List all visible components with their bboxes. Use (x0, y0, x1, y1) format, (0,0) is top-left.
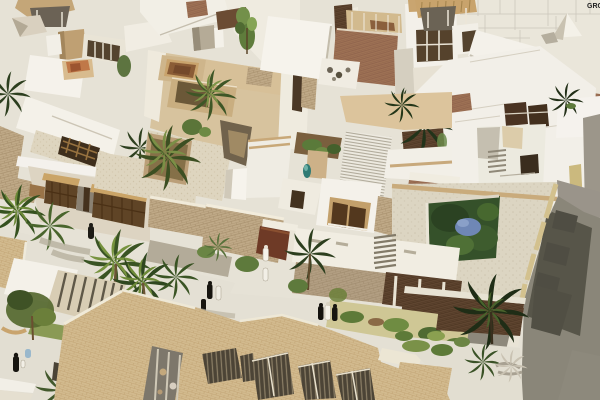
svg-text:GRO: GRO (587, 3, 600, 10)
